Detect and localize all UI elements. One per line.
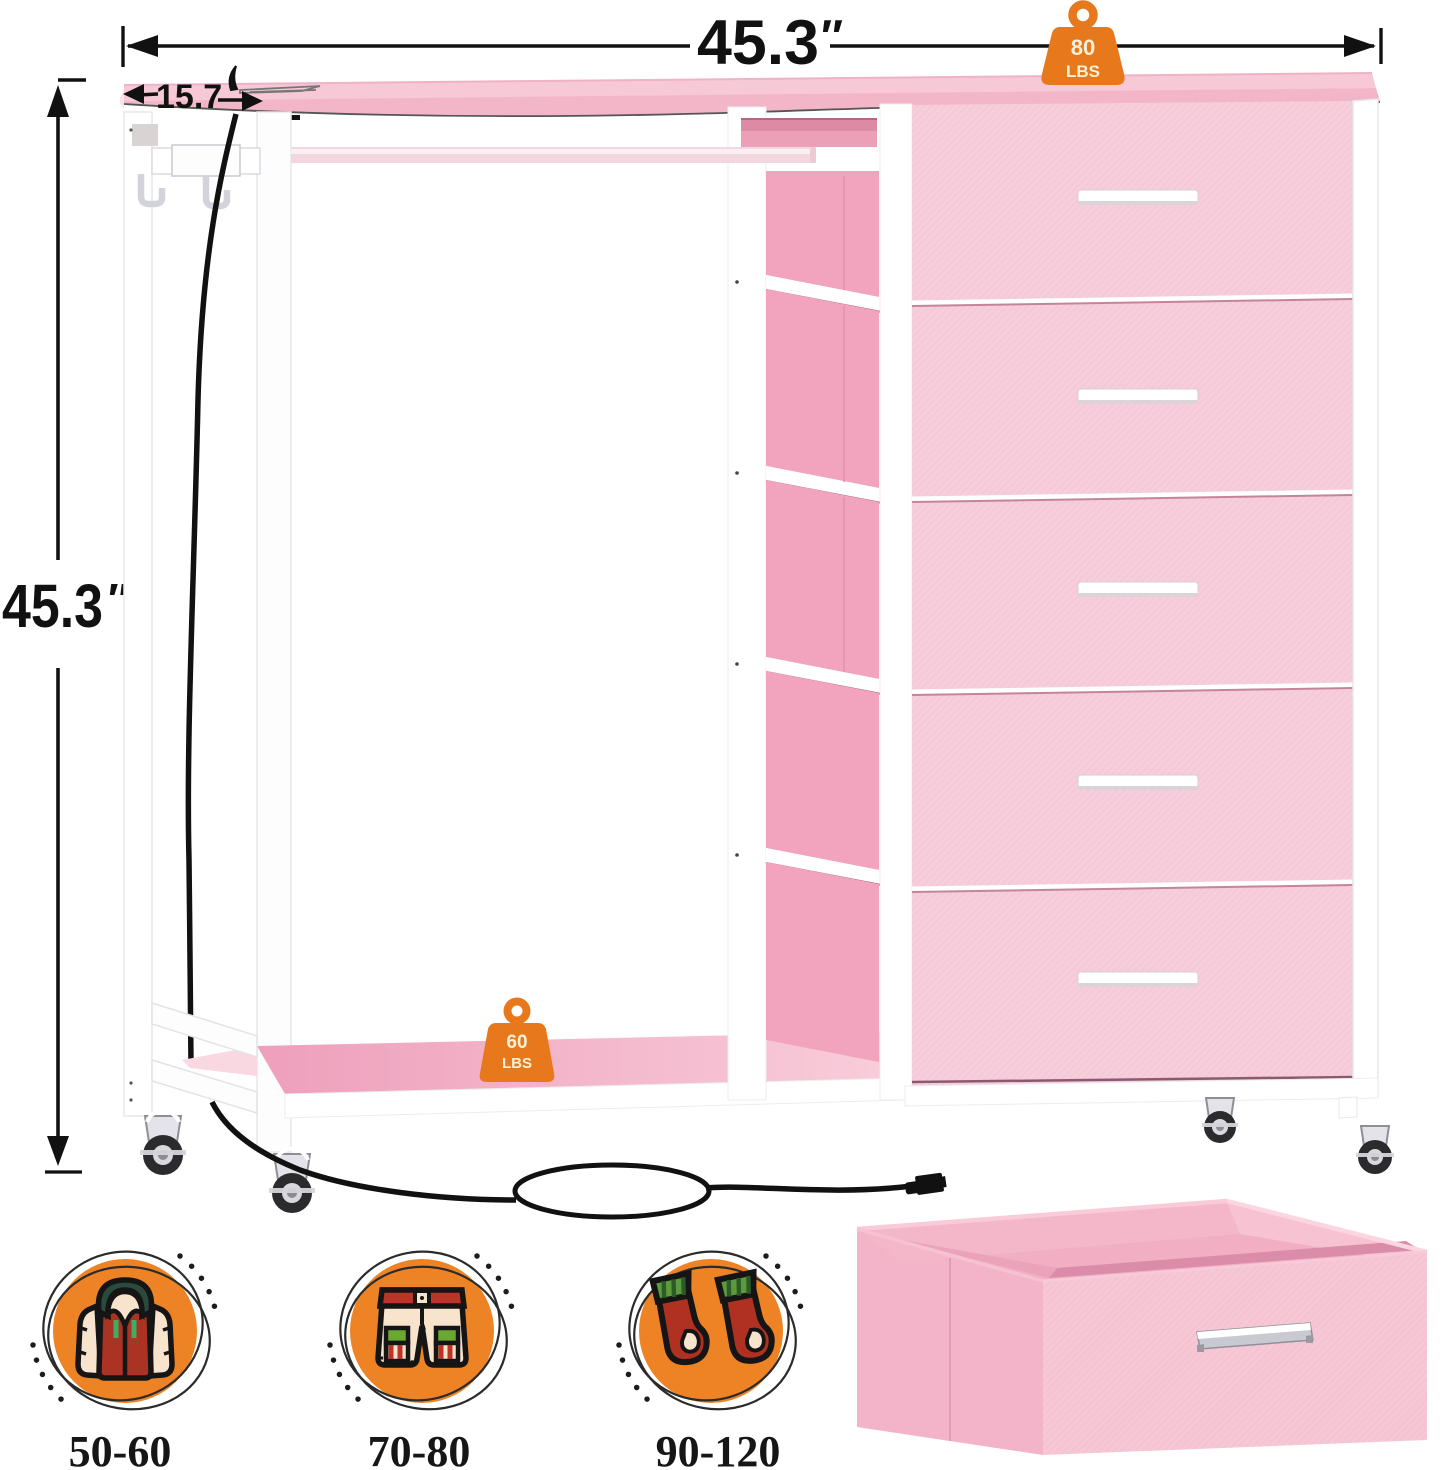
svg-text:LBS: LBS: [502, 1055, 532, 1072]
svg-text:50-60: 50-60: [69, 1427, 172, 1470]
svg-text:80: 80: [1071, 35, 1095, 60]
svg-text:45.3: 45.3: [697, 8, 819, 78]
svg-text:15.7: 15.7: [156, 78, 222, 116]
svg-text:90-120: 90-120: [656, 1427, 781, 1470]
svg-text:LBS: LBS: [1066, 62, 1100, 81]
svg-text:70-80: 70-80: [368, 1427, 471, 1470]
svg-text:60: 60: [506, 1032, 527, 1053]
svg-text:45.3: 45.3: [2, 572, 103, 640]
svg-text:″: ″: [821, 10, 843, 62]
